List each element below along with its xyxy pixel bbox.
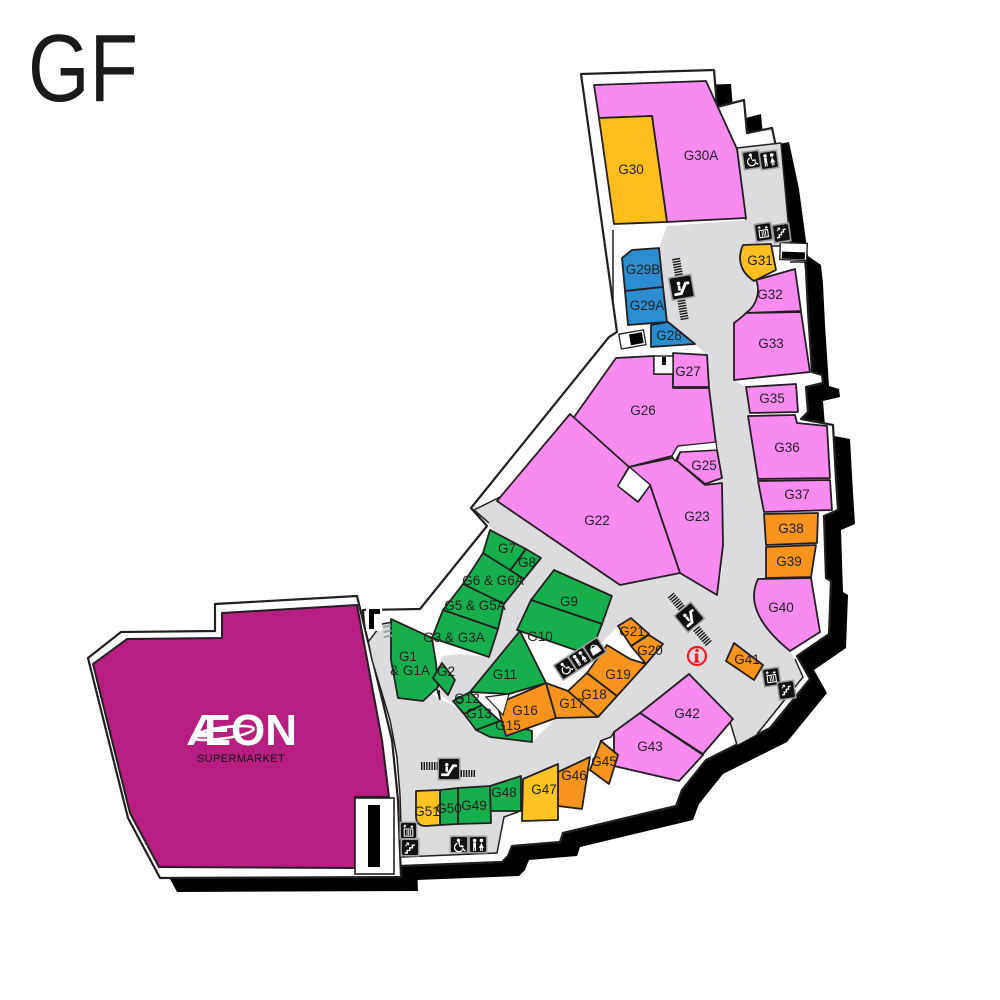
svg-text:G49: G49 xyxy=(461,798,487,813)
svg-text:G20: G20 xyxy=(637,643,663,658)
svg-text:G25: G25 xyxy=(691,458,717,473)
svg-text:G38: G38 xyxy=(778,521,804,536)
svg-text:G41: G41 xyxy=(734,652,760,667)
svg-text:G18: G18 xyxy=(581,687,607,702)
svg-text:G12: G12 xyxy=(454,691,480,706)
svg-text:G29A: G29A xyxy=(630,298,665,313)
svg-text:G5 & G5A: G5 & G5A xyxy=(444,598,506,613)
svg-text:G33: G33 xyxy=(758,336,784,351)
svg-text:G30A: G30A xyxy=(684,148,719,163)
svg-text:G3 & G3A: G3 & G3A xyxy=(423,630,485,645)
svg-text:G15: G15 xyxy=(495,718,521,733)
svg-text:G26: G26 xyxy=(630,403,656,418)
svg-text:G11: G11 xyxy=(493,667,518,682)
svg-text:G28: G28 xyxy=(656,328,682,343)
svg-text:G10: G10 xyxy=(527,629,553,644)
svg-text:& G1A: & G1A xyxy=(390,663,430,678)
svg-text:G22: G22 xyxy=(584,513,610,528)
svg-text:G32: G32 xyxy=(757,287,783,302)
svg-text:G39: G39 xyxy=(776,554,802,569)
svg-text:G29B: G29B xyxy=(626,262,661,277)
svg-text:G51: G51 xyxy=(414,804,440,819)
svg-text:G30: G30 xyxy=(618,162,644,177)
svg-text:G47: G47 xyxy=(531,782,557,797)
svg-text:SUPERMARKET: SUPERMARKET xyxy=(197,753,285,765)
svg-text:G23: G23 xyxy=(684,509,710,524)
svg-text:G8: G8 xyxy=(518,555,536,570)
svg-text:G6 & G6A: G6 & G6A xyxy=(462,573,524,588)
svg-text:G1: G1 xyxy=(399,649,417,664)
svg-text:G27: G27 xyxy=(675,364,701,379)
svg-text:G21: G21 xyxy=(619,624,645,639)
svg-text:G31: G31 xyxy=(747,253,773,268)
svg-text:G36: G36 xyxy=(774,440,800,455)
svg-text:G45: G45 xyxy=(591,754,617,769)
svg-text:G35: G35 xyxy=(759,391,785,406)
svg-text:G17: G17 xyxy=(559,696,585,711)
svg-text:G50: G50 xyxy=(436,801,462,816)
svg-text:G13: G13 xyxy=(466,706,492,721)
svg-text:G48: G48 xyxy=(491,785,517,800)
svg-text:G42: G42 xyxy=(674,706,700,721)
svg-text:GF: GF xyxy=(28,15,138,122)
svg-text:G9: G9 xyxy=(560,594,578,609)
svg-text:G46: G46 xyxy=(561,768,587,783)
svg-text:G16: G16 xyxy=(512,703,538,718)
svg-text:G40: G40 xyxy=(768,600,794,615)
svg-text:G7: G7 xyxy=(498,541,516,556)
svg-text:G43: G43 xyxy=(637,739,663,754)
svg-text:G37: G37 xyxy=(784,487,810,502)
svg-text:G19: G19 xyxy=(605,667,631,682)
svg-text:G2: G2 xyxy=(437,664,455,679)
